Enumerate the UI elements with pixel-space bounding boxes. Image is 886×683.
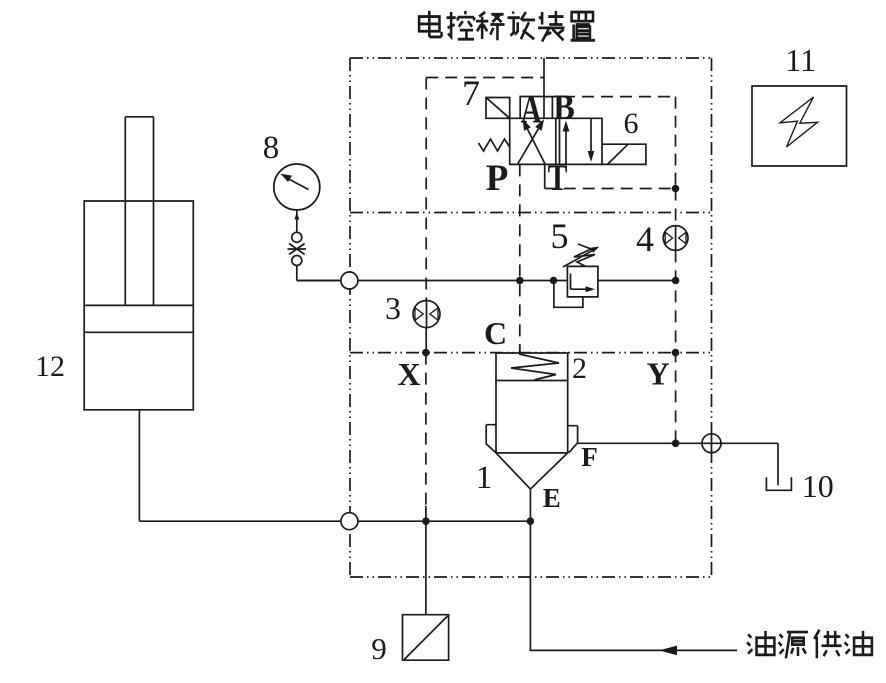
svg-text:B: B [553,87,575,127]
svg-text:F: F [581,442,598,472]
svg-text:3: 3 [385,290,401,326]
svg-text:12: 12 [35,350,65,383]
svg-text:4: 4 [636,219,654,259]
svg-text:6: 6 [624,107,639,140]
svg-text:Y: Y [646,356,669,392]
svg-text:E: E [543,483,561,513]
svg-text:A: A [521,87,542,132]
svg-text:1: 1 [476,460,493,496]
svg-text:11: 11 [785,42,816,78]
svg-text:10: 10 [802,468,834,504]
svg-text:9: 9 [371,631,387,666]
svg-text:X: X [397,356,420,392]
svg-text:C: C [484,315,507,351]
svg-text:T: T [548,158,568,199]
svg-text:2: 2 [572,352,587,385]
svg-text:8: 8 [263,130,280,166]
svg-text:7: 7 [462,73,480,113]
svg-text:5: 5 [551,216,569,256]
svg-text:P: P [486,158,509,199]
